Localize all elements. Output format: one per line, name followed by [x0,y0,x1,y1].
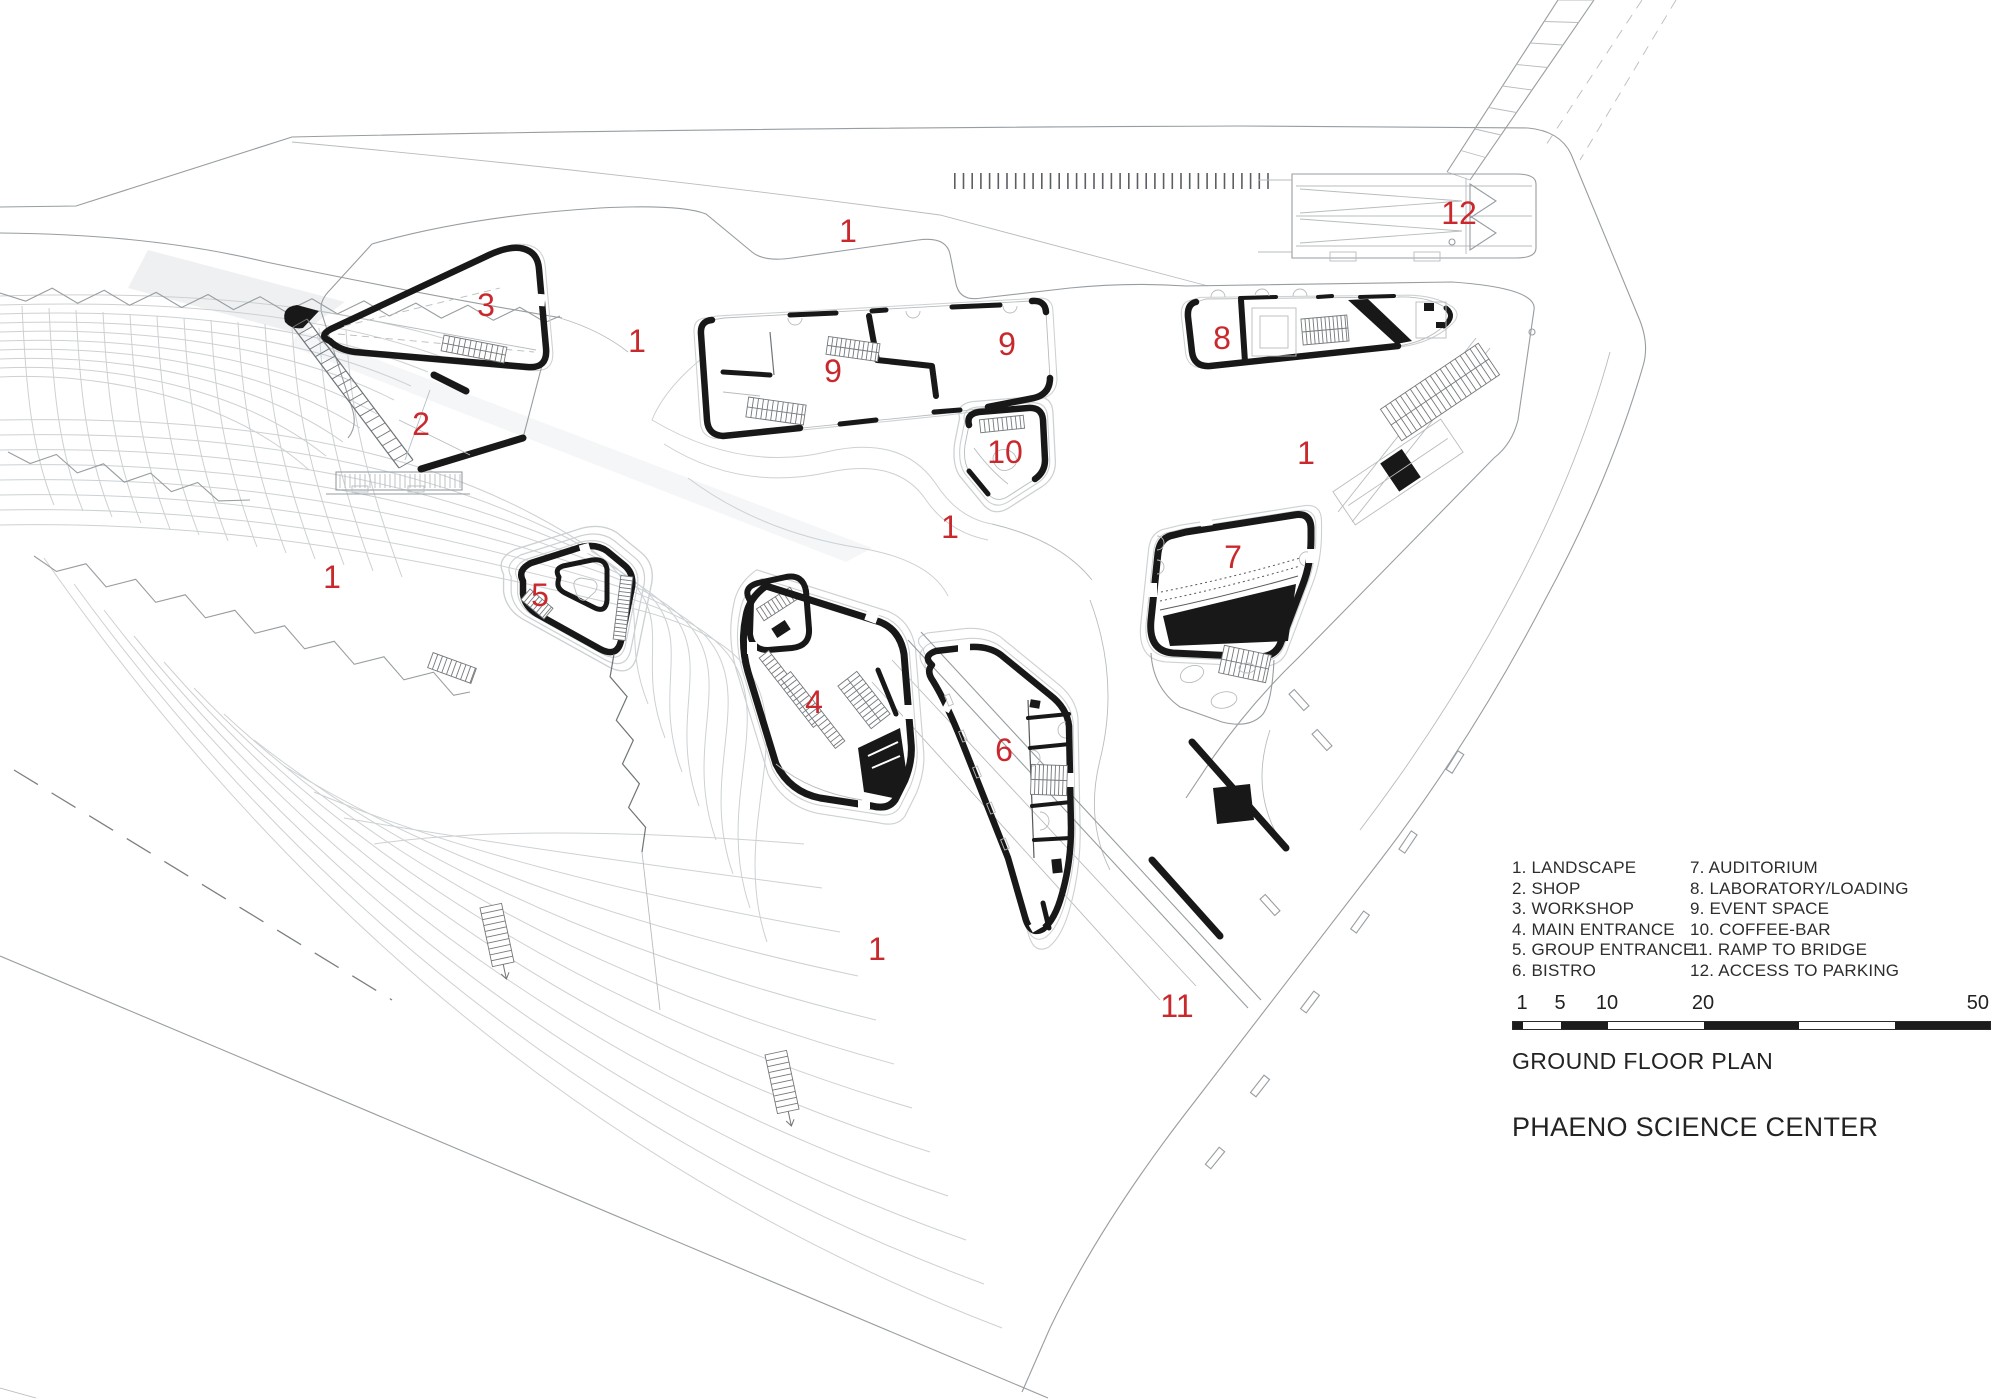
scale-bar-labels: 15102050 [1512,992,1990,1016]
landscape-stair [765,1050,802,1128]
title-block: 1. LANDSCAPE2. SHOP3. WORKSHOP4. MAIN EN… [1512,858,1990,1178]
plan-label-1-12: 1 [323,559,341,595]
legend-item: 8. LABORATORY/LOADING [1690,879,1909,900]
scale-segment [1608,1022,1703,1029]
scale-label: 20 [1692,992,1714,1015]
scale-segment [1704,1022,1799,1029]
plan-label-9-5: 9 [998,326,1016,362]
legend-column-1: 1. LANDSCAPE2. SHOP3. WORKSHOP4. MAIN EN… [1512,858,1695,982]
legend-item: 1. LANDSCAPE [1512,858,1695,879]
plan-label-6-15: 6 [995,732,1013,768]
legend-item: 4. MAIN ENTRANCE [1512,920,1695,941]
cone-workshop [324,245,546,368]
scale-segment [1561,1022,1609,1029]
plan-label-1-0: 1 [839,213,857,249]
legend-item: 11. RAMP TO BRIDGE [1690,940,1909,961]
stair-hatch [1030,764,1067,795]
legend-item: 12. ACCESS TO PARKING [1690,961,1909,982]
legend-item: 9. EVENT SPACE [1690,899,1909,920]
scale-bar [1512,1021,1991,1030]
building-cones [284,245,1450,1010]
plan-label-1-3: 1 [628,323,646,359]
project-title: PHAENO SCIENCE CENTER [1512,1112,1878,1143]
scale-segment [1513,1022,1523,1029]
legend-item: 2. SHOP [1512,879,1695,900]
legend-item: 5. GROUP ENTRANCE [1512,940,1695,961]
cone-bistro [928,643,1074,932]
plan-label-3-2: 3 [477,287,495,323]
scale-label: 50 [1967,992,1989,1015]
plan-label-10-8: 10 [987,434,1023,470]
scale-segment [1895,1022,1990,1029]
plan-label-4-14: 4 [805,684,823,720]
plan-label-9-4: 9 [824,353,842,389]
landscape-stair [428,653,477,684]
drawing-title: GROUND FLOOR PLAN [1512,1048,1773,1075]
legend-item: 6. BISTRO [1512,961,1695,982]
floor-plan-drawing: 112319982101171546111 [0,0,2000,1400]
stair-hatch [1219,645,1272,682]
scale-segment [1523,1022,1561,1029]
scale-label: 5 [1554,992,1565,1015]
site-and-roads [0,0,1676,1398]
plan-label-1-9: 1 [1297,435,1315,471]
scale-segment [1799,1022,1894,1029]
plan-label-5-13: 5 [531,577,549,613]
floor-plan-sheet: 112319982101171546111 1. LANDSCAPE2. SHO… [0,0,2000,1400]
plan-label-1-16: 1 [868,931,886,967]
bridge-stairs [1380,343,1499,440]
legend-item: 3. WORKSHOP [1512,899,1695,920]
stair-hatch [746,397,806,425]
plan-label-11-17: 11 [1160,988,1193,1024]
legend-item: 10. COFFEE-BAR [1690,920,1909,941]
scale-label: 10 [1596,992,1618,1015]
cone-event-space [701,301,1050,436]
plan-label-8-6: 8 [1213,320,1231,356]
plan-label-2-7: 2 [412,406,430,442]
legend-item: 7. AUDITORIUM [1690,858,1909,879]
plan-label-12-1: 12 [1441,195,1477,231]
stair-hatch [1301,315,1349,345]
phaeno-ground-floor-plan: { "drawing": { "title": "GROUND FLOOR PL… [0,0,2000,1400]
plan-label-7-11: 7 [1224,539,1242,575]
stair-hatch [979,415,1024,433]
legend-column-2: 7. AUDITORIUM8. LABORATORY/LOADING9. EVE… [1690,858,1909,982]
landscape-stairs [428,653,802,1129]
plan-label-1-10: 1 [941,509,959,545]
scale-label: 1 [1516,992,1527,1015]
